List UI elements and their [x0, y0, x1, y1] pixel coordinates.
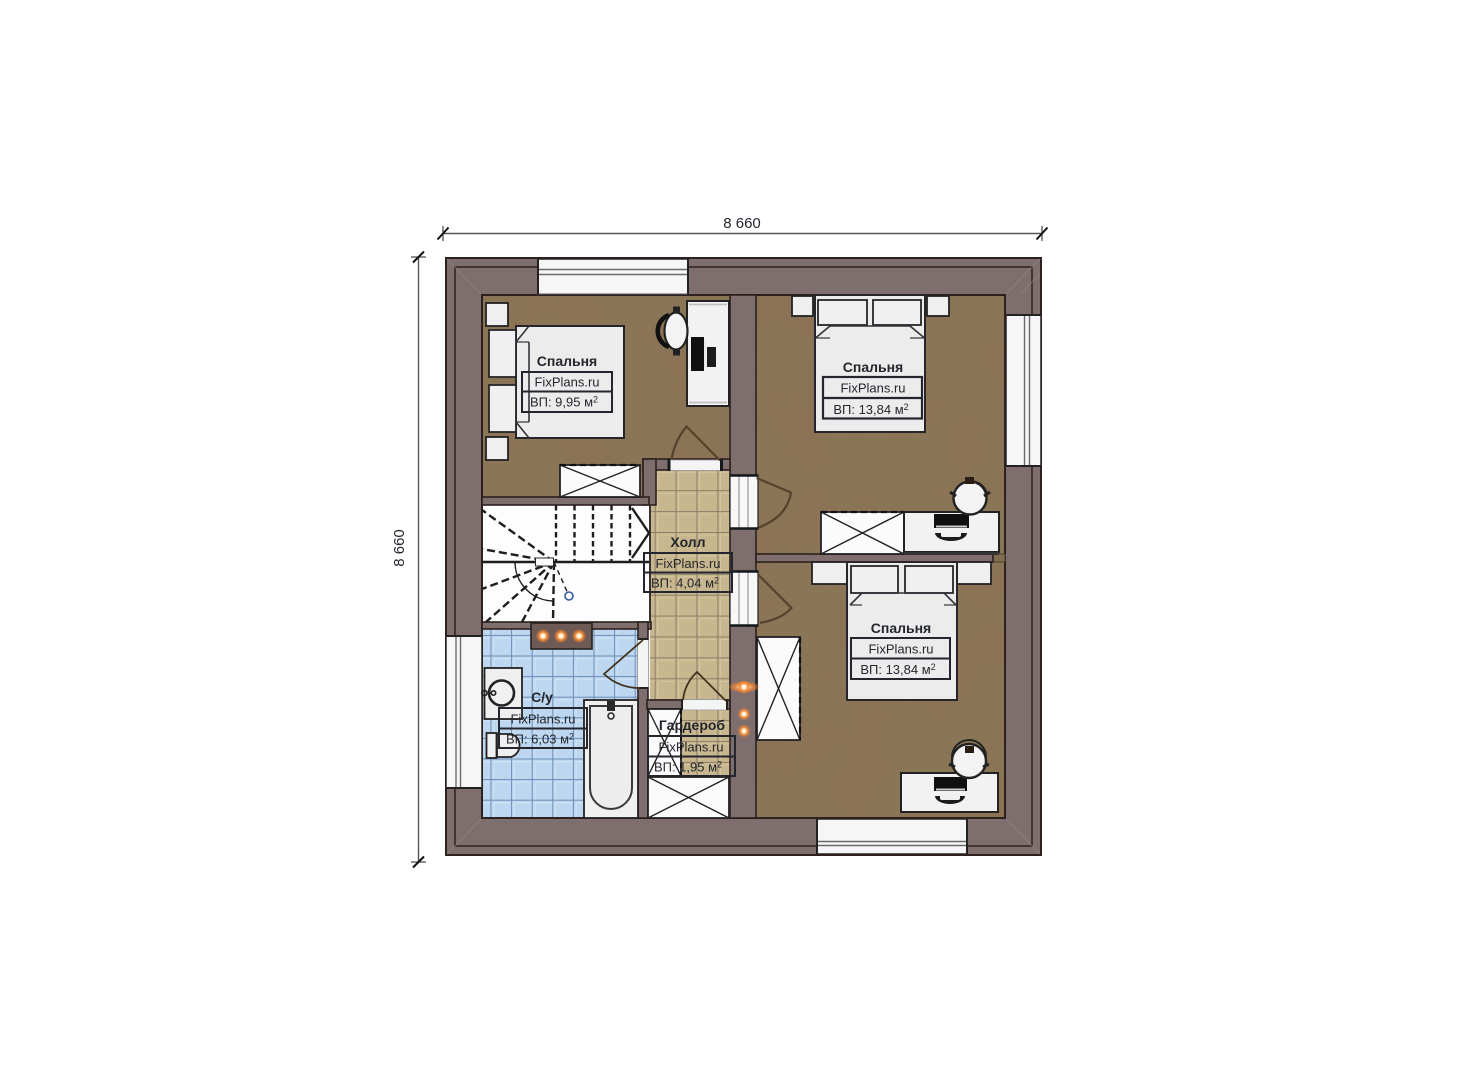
- svg-text:Холл: Холл: [670, 534, 705, 550]
- svg-text:8 660: 8 660: [723, 215, 761, 232]
- svg-text:FixPlans.ru: FixPlans.ru: [658, 740, 723, 755]
- svg-text:Гардероб: Гардероб: [659, 717, 726, 733]
- svg-text:ВП: 6,03 м2: ВП: 6,03 м2: [506, 732, 574, 747]
- svg-text:ВП: 9,95 м2: ВП: 9,95 м2: [530, 395, 598, 410]
- svg-text:ВП: 13,84 м2: ВП: 13,84 м2: [833, 402, 908, 417]
- svg-text:ВП: 13,84 м2: ВП: 13,84 м2: [860, 662, 935, 677]
- svg-text:С/у: С/у: [531, 689, 553, 705]
- svg-text:ВП: 4,04 м2: ВП: 4,04 м2: [651, 576, 719, 591]
- svg-text:FixPlans.ru: FixPlans.ru: [510, 712, 575, 727]
- svg-text:8 660: 8 660: [391, 529, 408, 567]
- svg-text:Спальня: Спальня: [871, 620, 931, 636]
- svg-text:FixPlans.ru: FixPlans.ru: [655, 556, 720, 571]
- svg-text:FixPlans.ru: FixPlans.ru: [534, 375, 599, 390]
- svg-text:Спальня: Спальня: [537, 353, 597, 369]
- svg-text:FixPlans.ru: FixPlans.ru: [840, 381, 905, 396]
- svg-text:ВП: 1,95 м2: ВП: 1,95 м2: [654, 760, 722, 775]
- svg-text:FixPlans.ru: FixPlans.ru: [868, 642, 933, 657]
- svg-text:Спальня: Спальня: [843, 359, 903, 375]
